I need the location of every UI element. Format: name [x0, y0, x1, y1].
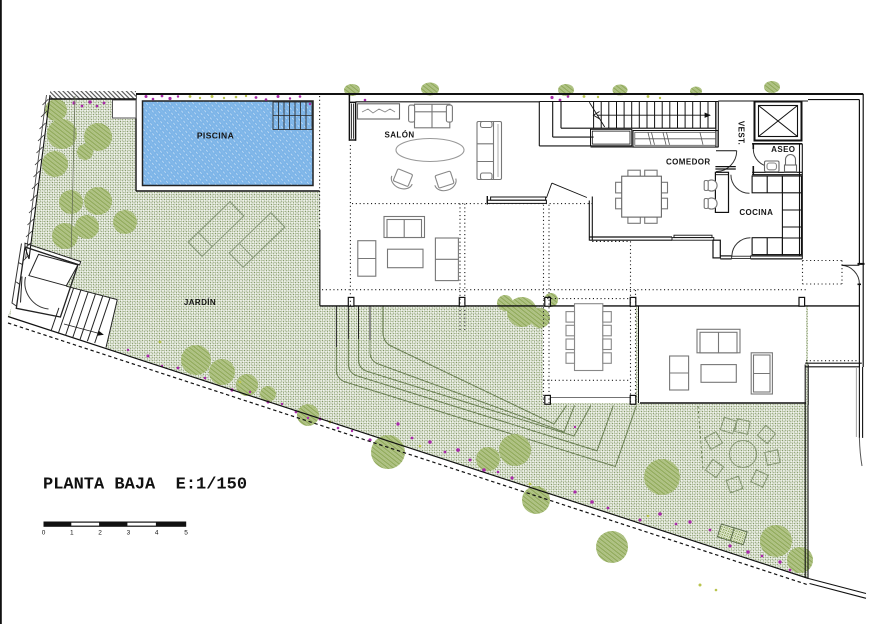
svg-text:VEST.: VEST. — [737, 121, 746, 145]
svg-text:2: 2 — [98, 530, 102, 537]
svg-text:COMEDOR: COMEDOR — [666, 158, 711, 167]
svg-text:JARDÍN: JARDÍN — [184, 298, 216, 307]
svg-text:5: 5 — [184, 530, 188, 537]
svg-text:SALÓN: SALÓN — [385, 131, 415, 140]
svg-text:PISCINA: PISCINA — [197, 131, 234, 141]
svg-text:COCINA: COCINA — [739, 208, 773, 217]
svg-text:0: 0 — [42, 530, 46, 537]
svg-text:1: 1 — [70, 530, 74, 537]
svg-text:ASEO: ASEO — [771, 145, 795, 154]
svg-text:4: 4 — [155, 530, 159, 537]
svg-text:PLANTA BAJA E:1/150: PLANTA BAJA E:1/150 — [43, 476, 247, 495]
svg-text:3: 3 — [127, 530, 131, 537]
